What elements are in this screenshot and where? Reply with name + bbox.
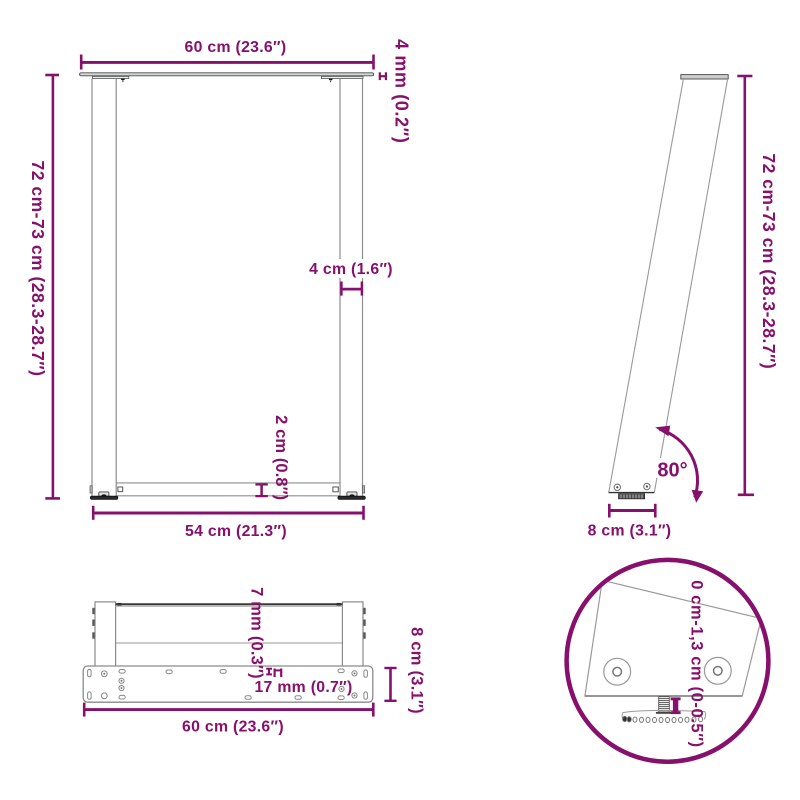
svg-text:72 cm-73 cm (28.3-28.7″): 72 cm-73 cm (28.3-28.7″): [28, 161, 48, 377]
svg-text:72 cm-73 cm (28.3-28.7″): 72 cm-73 cm (28.3-28.7″): [759, 153, 779, 369]
svg-text:80°: 80°: [657, 459, 687, 481]
svg-text:4 cm (1.6″): 4 cm (1.6″): [309, 261, 393, 278]
svg-text:0 cm-1,3 cm (0-0.5″): 0 cm-1,3 cm (0-0.5″): [688, 580, 706, 748]
svg-text:8 cm (3.1″): 8 cm (3.1″): [407, 627, 425, 714]
svg-text:60 cm (23.6″): 60 cm (23.6″): [185, 39, 287, 56]
svg-text:60 cm (23.6″): 60 cm (23.6″): [182, 719, 284, 736]
svg-text:4 mm (0.2″): 4 mm (0.2″): [391, 39, 411, 143]
svg-text:8 cm (3.1″): 8 cm (3.1″): [588, 523, 672, 540]
svg-text:7 mm (0.3″): 7 mm (0.3″): [247, 587, 265, 679]
svg-text:2 cm (0.8″): 2 cm (0.8″): [272, 415, 290, 500]
svg-text:17 mm (0.7″): 17 mm (0.7″): [254, 679, 352, 696]
svg-text:54 cm (21.3″): 54 cm (21.3″): [185, 523, 287, 540]
